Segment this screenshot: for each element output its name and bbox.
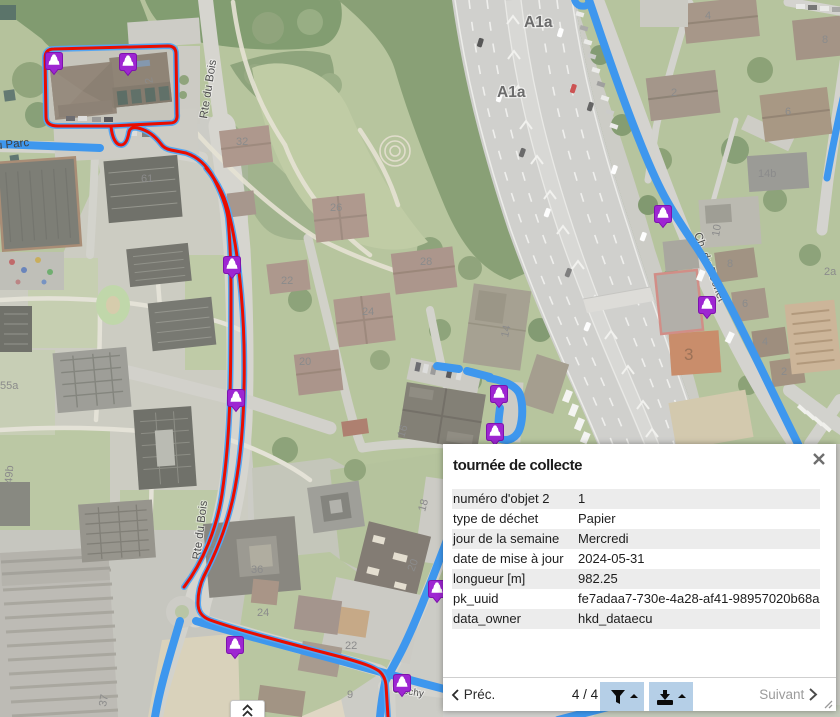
- svg-text:22: 22: [281, 275, 293, 287]
- svg-text:49b: 49b: [3, 465, 16, 484]
- svg-text:28: 28: [420, 256, 432, 268]
- svg-text:32: 32: [236, 136, 248, 148]
- svg-text:24: 24: [362, 306, 374, 318]
- svg-text:A1a: A1a: [497, 84, 526, 101]
- svg-text:14: 14: [499, 324, 513, 338]
- svg-text:8: 8: [727, 258, 733, 270]
- svg-text:61: 61: [141, 173, 153, 185]
- svg-text:2a: 2a: [824, 266, 837, 278]
- svg-text:4: 4: [762, 336, 768, 348]
- svg-text:2: 2: [781, 366, 787, 378]
- svg-text:24: 24: [257, 607, 269, 619]
- svg-text:37: 37: [97, 693, 111, 707]
- svg-text:4: 4: [705, 10, 711, 22]
- svg-text:6: 6: [785, 106, 791, 118]
- svg-text:A1a: A1a: [524, 14, 553, 31]
- svg-text:20: 20: [299, 356, 311, 368]
- svg-text:26: 26: [330, 202, 342, 214]
- svg-text:55a: 55a: [0, 380, 19, 392]
- svg-text:3: 3: [684, 345, 693, 364]
- svg-text:36: 36: [251, 564, 263, 576]
- svg-text:2: 2: [671, 87, 677, 99]
- svg-text:14b: 14b: [758, 168, 776, 180]
- svg-text:10: 10: [710, 223, 724, 237]
- svg-text:8: 8: [822, 34, 828, 46]
- svg-text:6: 6: [742, 298, 748, 310]
- svg-text:22: 22: [345, 640, 357, 652]
- svg-text:9: 9: [347, 689, 353, 701]
